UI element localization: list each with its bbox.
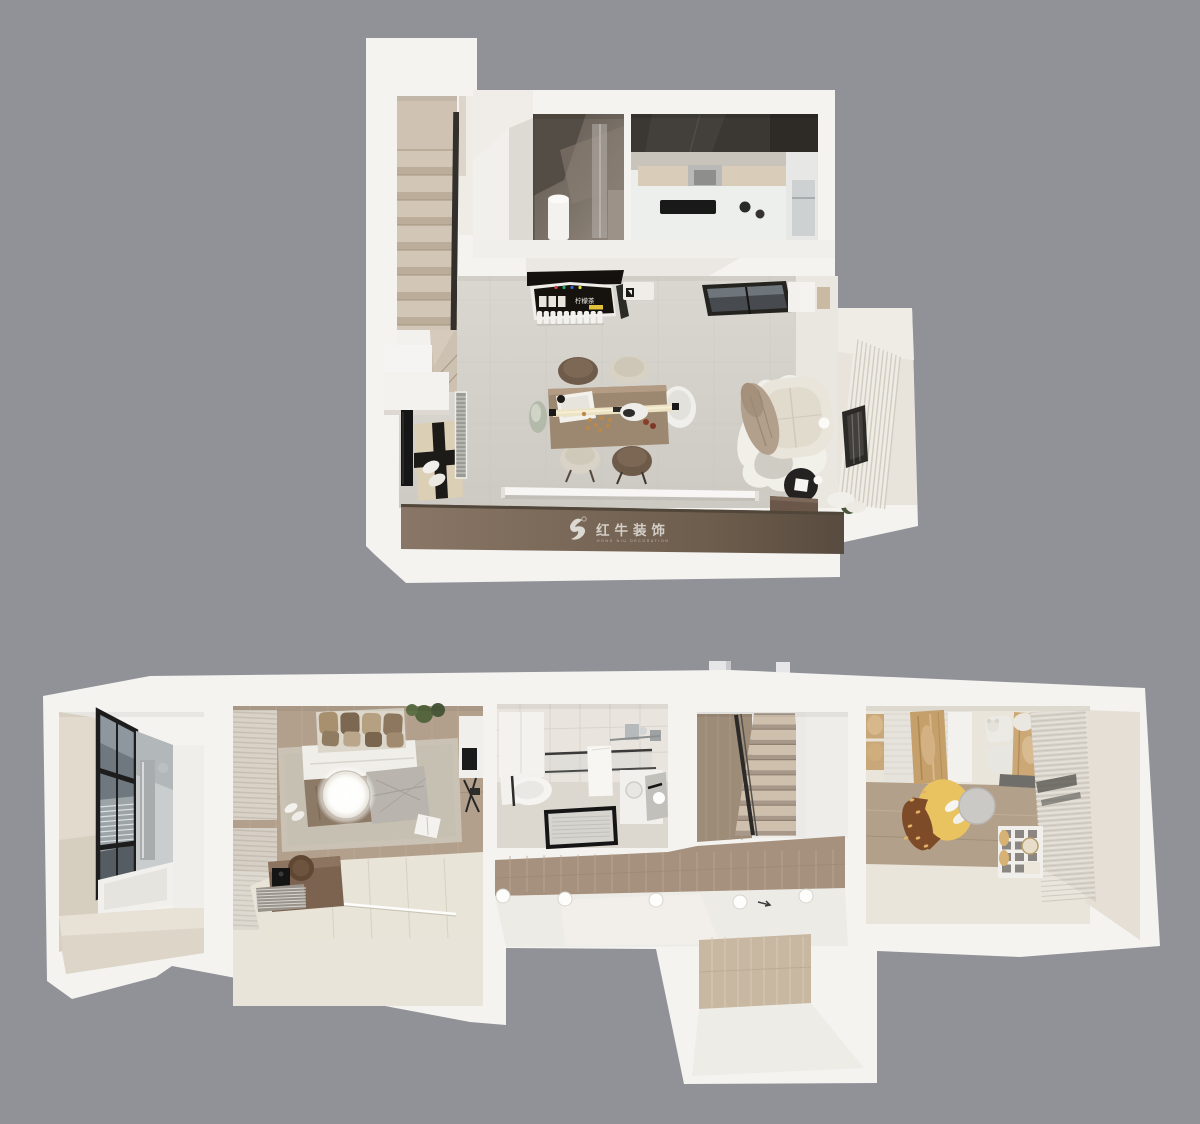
svg-text:红牛装饰: 红牛装饰 (596, 522, 670, 538)
svg-text:柠檬茶: 柠檬茶 (575, 296, 595, 305)
svg-text:HONG NIU DECORATION: HONG NIU DECORATION (597, 539, 670, 543)
